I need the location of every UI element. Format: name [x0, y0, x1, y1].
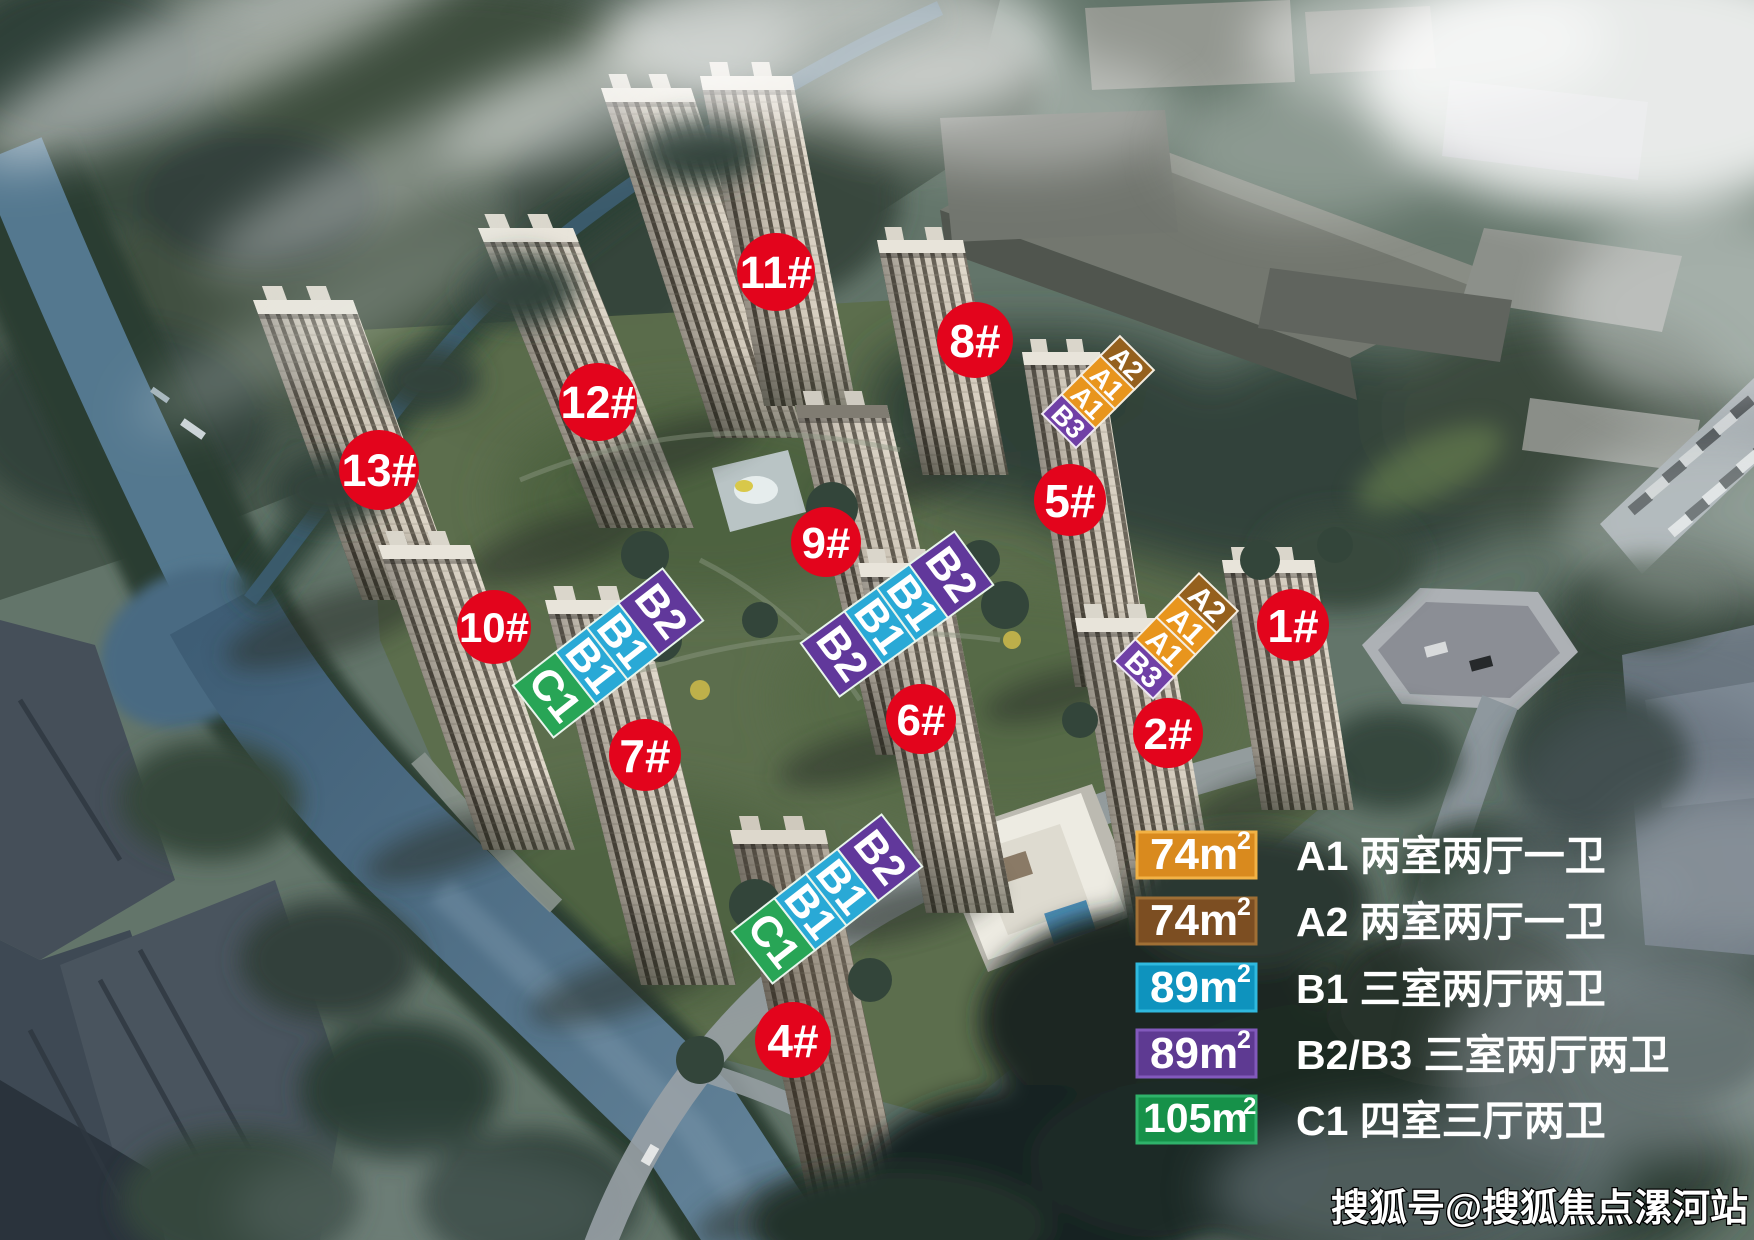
- svg-text:89m: 89m: [1150, 1029, 1238, 1078]
- svg-text:C1 四室三厅两卫: C1 四室三厅两卫: [1296, 1098, 1606, 1144]
- svg-text:5#: 5#: [1044, 475, 1095, 527]
- svg-text:13#: 13#: [341, 445, 416, 496]
- svg-text:7#: 7#: [619, 730, 670, 782]
- svg-text:89m: 89m: [1150, 963, 1238, 1012]
- svg-text:8#: 8#: [949, 315, 1000, 367]
- svg-text:A2 两室两厅一卫: A2 两室两厅一卫: [1296, 899, 1606, 945]
- svg-text:10#: 10#: [459, 604, 529, 651]
- svg-text:6#: 6#: [897, 696, 946, 745]
- svg-text:2#: 2#: [1144, 710, 1193, 759]
- svg-text:2: 2: [1237, 1026, 1251, 1054]
- svg-text:9#: 9#: [802, 519, 851, 568]
- svg-text:2: 2: [1237, 893, 1251, 921]
- svg-text:2: 2: [1237, 960, 1251, 988]
- svg-text:4#: 4#: [767, 1015, 818, 1067]
- svg-text:B1 三室两厅两卫: B1 三室两厅两卫: [1296, 966, 1606, 1012]
- svg-text:11#: 11#: [740, 247, 813, 298]
- svg-text:B2/B3 三室两厅两卫: B2/B3 三室两厅两卫: [1296, 1032, 1670, 1078]
- svg-text:1#: 1#: [1267, 600, 1318, 652]
- svg-text:105m: 105m: [1143, 1095, 1248, 1141]
- svg-text:74m: 74m: [1150, 896, 1238, 945]
- svg-text:A1 两室两厅一卫: A1 两室两厅一卫: [1296, 833, 1606, 879]
- svg-text:12#: 12#: [560, 377, 635, 428]
- svg-text:搜狐号@搜狐焦点漯河站: 搜狐号@搜狐焦点漯河站: [1331, 1188, 1748, 1230]
- svg-text:2: 2: [1243, 1093, 1256, 1120]
- svg-text:2: 2: [1237, 827, 1251, 855]
- svg-text:74m: 74m: [1150, 830, 1238, 879]
